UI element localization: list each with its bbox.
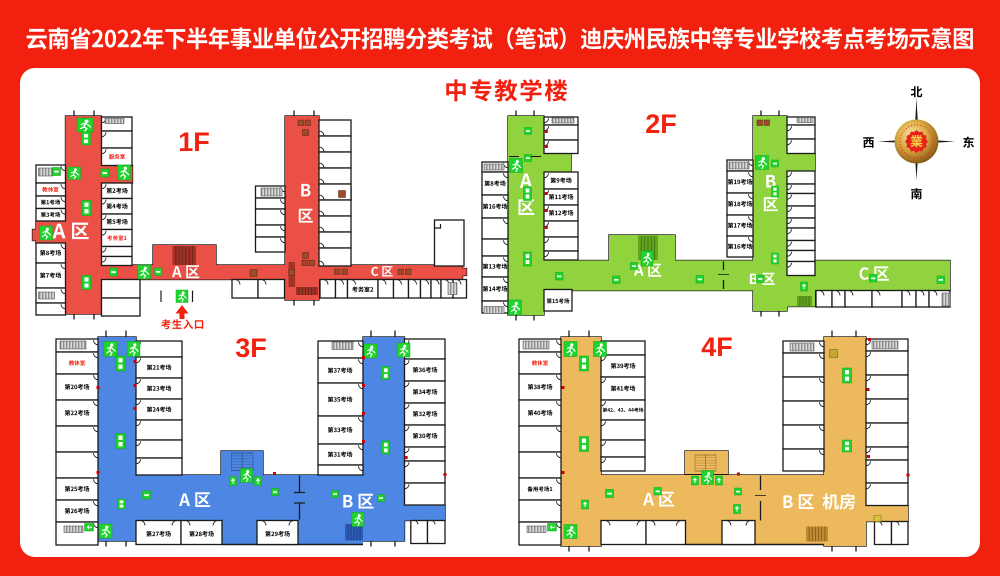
svg-text:2F: 2F	[645, 109, 677, 139]
svg-text:3F: 3F	[235, 333, 267, 363]
svg-text:1F: 1F	[178, 127, 210, 157]
svg-text:4F: 4F	[701, 332, 733, 362]
